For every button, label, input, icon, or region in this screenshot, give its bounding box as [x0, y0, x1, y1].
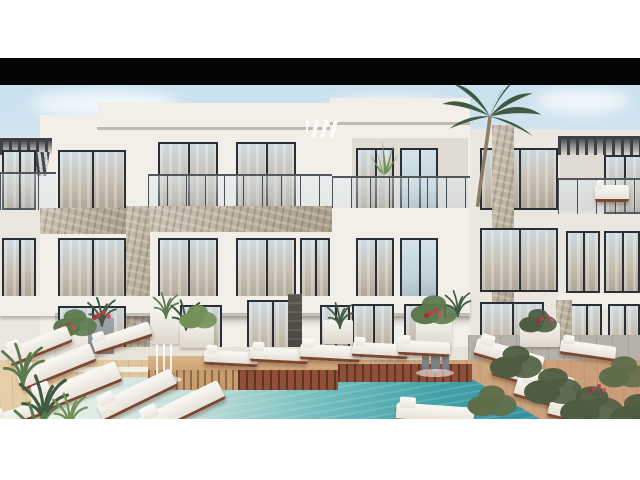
- planter: [520, 323, 560, 347]
- planter: [323, 320, 353, 344]
- balcony-sofa: [595, 185, 629, 202]
- lounger: [398, 340, 451, 358]
- window: [604, 231, 640, 293]
- cloud: [535, 89, 630, 113]
- balcony-glass-railing: [332, 176, 470, 212]
- render-photo: [0, 85, 640, 419]
- window: [236, 238, 296, 302]
- stone-parapet: [40, 208, 126, 234]
- window: [566, 231, 600, 293]
- planter: [180, 322, 214, 348]
- stone-parapet: [148, 206, 332, 232]
- window: [356, 238, 394, 300]
- fountain-pedestal: [150, 310, 180, 344]
- window: [400, 238, 438, 300]
- red-flowers: [96, 313, 101, 318]
- window: [2, 238, 36, 298]
- red-flowers: [592, 387, 596, 391]
- rooftop-pergola-right: [558, 136, 640, 155]
- balcony-glass-railing: [0, 172, 56, 210]
- awning-fins: [306, 120, 340, 138]
- window: [158, 238, 218, 302]
- red-flowers: [428, 311, 433, 316]
- window: [58, 238, 126, 300]
- fascia-shadow: [97, 127, 330, 130]
- letterbox-bar: [0, 58, 640, 85]
- fascia-band: [332, 208, 470, 224]
- red-flowers: [540, 317, 544, 321]
- window: [480, 228, 558, 292]
- fountain-splash: [416, 369, 454, 377]
- balcony-glass-railing: [148, 174, 332, 210]
- fascia-shadow: [330, 122, 470, 125]
- page: [0, 0, 640, 480]
- island-deck-slats-red: [238, 370, 338, 390]
- window: [300, 238, 330, 302]
- window: [58, 150, 126, 210]
